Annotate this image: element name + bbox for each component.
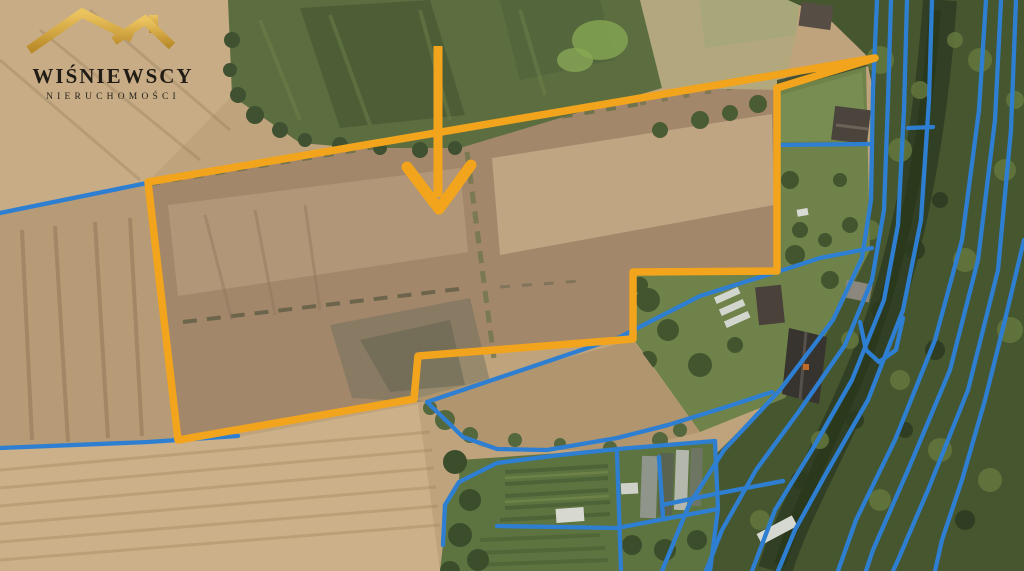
brand-name: WIŚNIEWSCY xyxy=(22,64,204,89)
plot-boundary-outline xyxy=(148,58,875,440)
cadastral-line-connector-1 xyxy=(777,144,872,145)
cadastral-line-boundary-nw xyxy=(0,183,147,213)
cadastral-line-garden-divider-1 xyxy=(617,452,621,571)
brand-logo: WIŚNIEWSCY NIERUCHOMOŚCI xyxy=(22,6,204,106)
cadastral-line-river-line-5 xyxy=(838,0,986,571)
brand-subtitle: NIERUCHOMOŚCI xyxy=(22,92,204,102)
cadastral-line-connector-3 xyxy=(662,481,783,505)
aerial-listing-image: WIŚNIEWSCY NIERUCHOMOŚCI xyxy=(0,0,1024,571)
cadastral-line-river-line-4 xyxy=(778,0,932,571)
cadastral-line-garden-divider-2 xyxy=(659,457,663,517)
logo-roof-icon xyxy=(22,6,182,61)
